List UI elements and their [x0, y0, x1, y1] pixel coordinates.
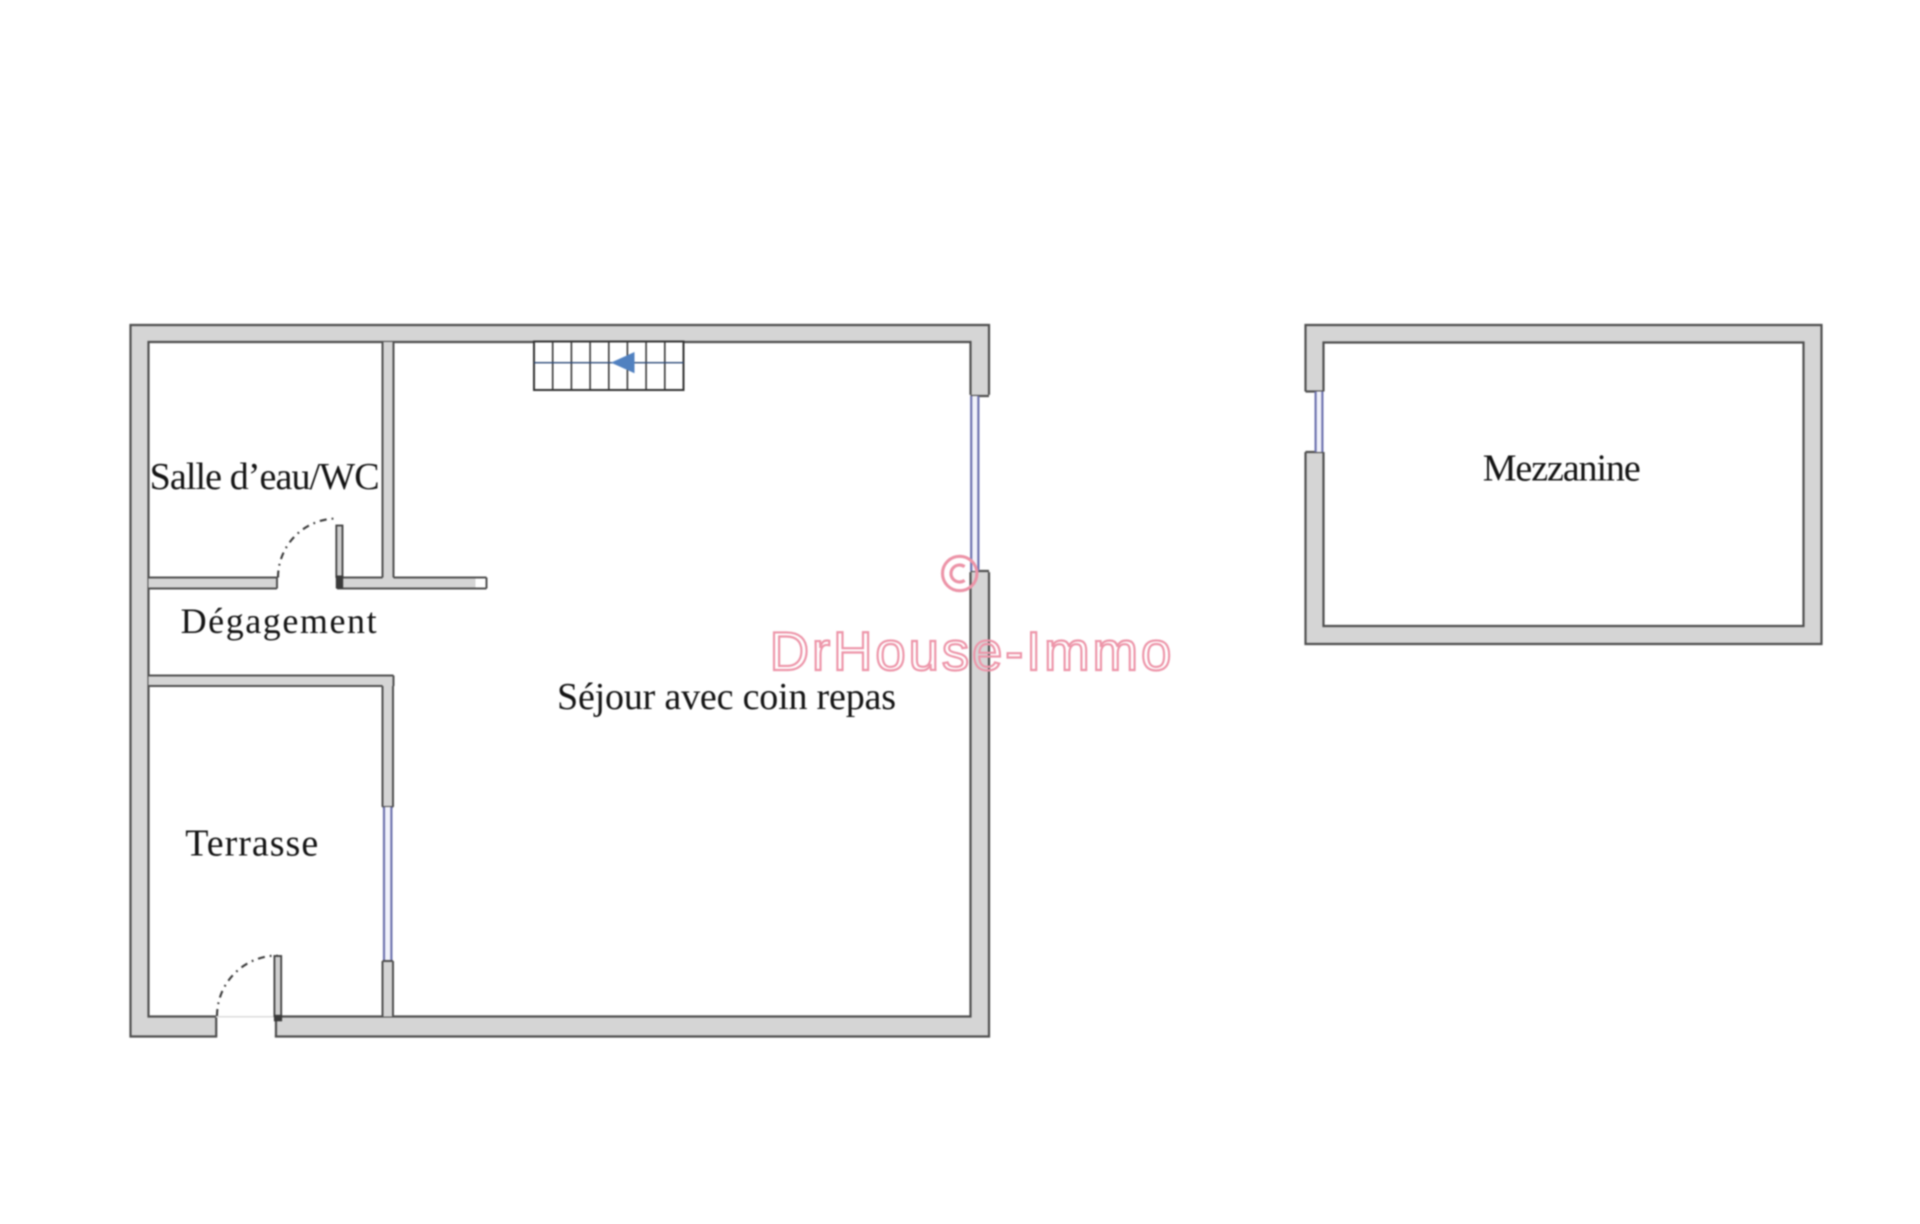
svg-text:DrHouse-Immo: DrHouse-Immo — [770, 620, 1174, 682]
svg-text:Salle d’eau/WC: Salle d’eau/WC — [150, 456, 380, 498]
svg-text:Dégagement: Dégagement — [181, 601, 377, 641]
svg-text:Terrasse: Terrasse — [185, 823, 318, 865]
svg-text:Mezzanine: Mezzanine — [1483, 448, 1641, 490]
svg-text:Séjour avec coin repas: Séjour avec coin repas — [557, 676, 896, 718]
